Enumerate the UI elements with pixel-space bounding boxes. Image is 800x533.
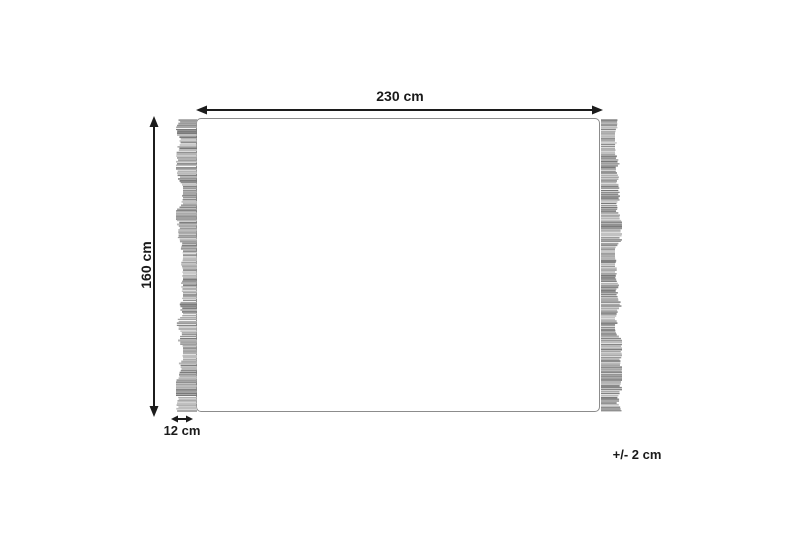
rug-outline [196,118,600,412]
tolerance-label: +/- 2 cm [613,447,662,462]
rug-dimension-diagram: 230 cm 160 cm 12 cm +/- 2 cm [0,0,800,533]
fringe-dimension-label: 12 cm [164,423,201,438]
rug-fringe-right-icon [601,119,624,412]
fringe-dimension-arrow-icon [171,416,193,423]
rug-fringe-left-icon [174,119,197,412]
width-dimension-arrow-icon [196,106,603,115]
height-dimension-label: 160 cm [138,241,154,288]
width-dimension-label: 230 cm [376,88,423,104]
